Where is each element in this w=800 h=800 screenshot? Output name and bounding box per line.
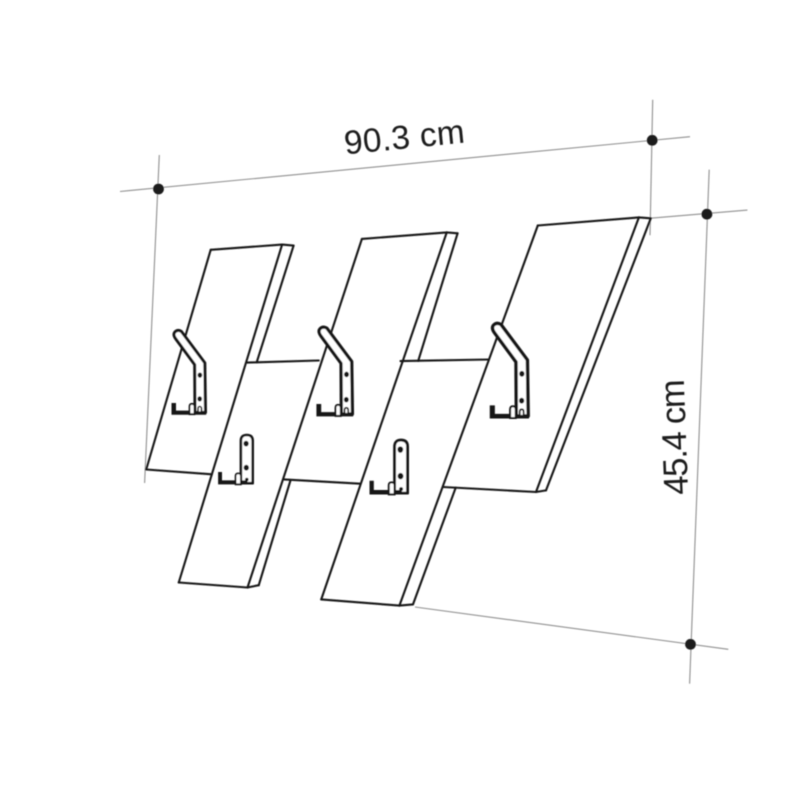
svg-text:45.4 cm: 45.4 cm <box>654 380 696 496</box>
